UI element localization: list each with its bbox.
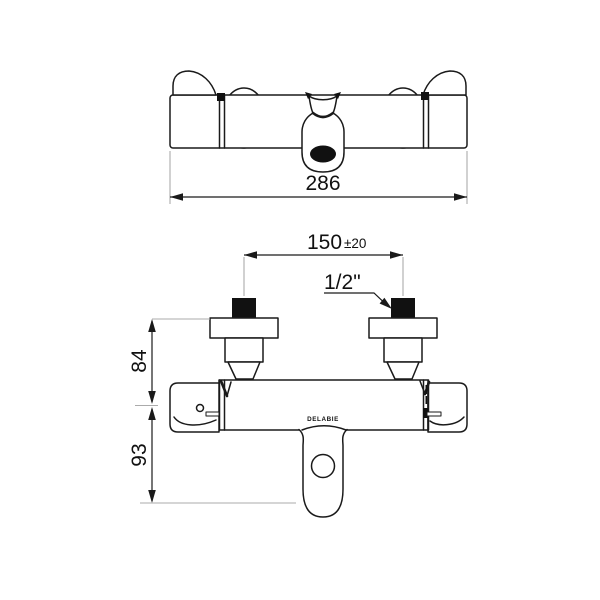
dim-arrow-down	[148, 490, 156, 503]
overall-width-value: 286	[305, 172, 340, 195]
dimension-inlet-spacing: 150 ±20	[244, 231, 403, 259]
left-inlet-flange	[210, 318, 278, 338]
left-inlet-connector	[210, 257, 278, 379]
front-view-spout	[299, 426, 347, 517]
wall-to-axis-value: 84	[128, 349, 151, 373]
top-view-spout-outlet	[310, 146, 336, 163]
right-inlet-neck	[387, 362, 419, 379]
right-inlet-thread	[391, 298, 415, 318]
right-inlet-connector	[369, 257, 437, 379]
leader-line	[324, 293, 383, 302]
axis-to-outlet-value: 93	[128, 443, 151, 466]
right-inlet-flange	[369, 318, 437, 338]
mixer-technical-drawing: 286	[0, 0, 600, 600]
right-inlet-nut	[384, 338, 422, 362]
dim-arrow-right	[454, 193, 467, 201]
inlet-spacing-value: 150	[307, 231, 342, 254]
inlet-thread-value: 1/2"	[324, 271, 361, 294]
technical-drawing-canvas: 286	[0, 0, 600, 600]
dim-arrow-left	[170, 193, 183, 201]
left-inlet-neck	[228, 362, 260, 379]
left-inlet-nut	[225, 338, 263, 362]
top-view: 286	[170, 71, 467, 204]
dim-arrow-up	[148, 407, 156, 420]
left-inlet-thread	[232, 298, 256, 318]
front-view: DELABIE 150 ±20 1/2" 84	[128, 231, 467, 517]
callout-inlet-thread: 1/2"	[324, 271, 392, 309]
inlet-spacing-tolerance: ±20	[344, 236, 366, 251]
right-handle-stop-tab	[427, 412, 441, 416]
top-view-right-handle-lever	[423, 71, 466, 95]
top-view-left-handle-lever	[173, 71, 216, 95]
dim-arrow-right	[390, 251, 403, 259]
dim-arrow-down	[148, 391, 156, 404]
left-handle-stop-tab	[206, 412, 219, 416]
dim-arrow-up	[148, 319, 156, 332]
dim-arrow-left	[244, 251, 257, 259]
brand-logo: DELABIE	[307, 416, 339, 423]
